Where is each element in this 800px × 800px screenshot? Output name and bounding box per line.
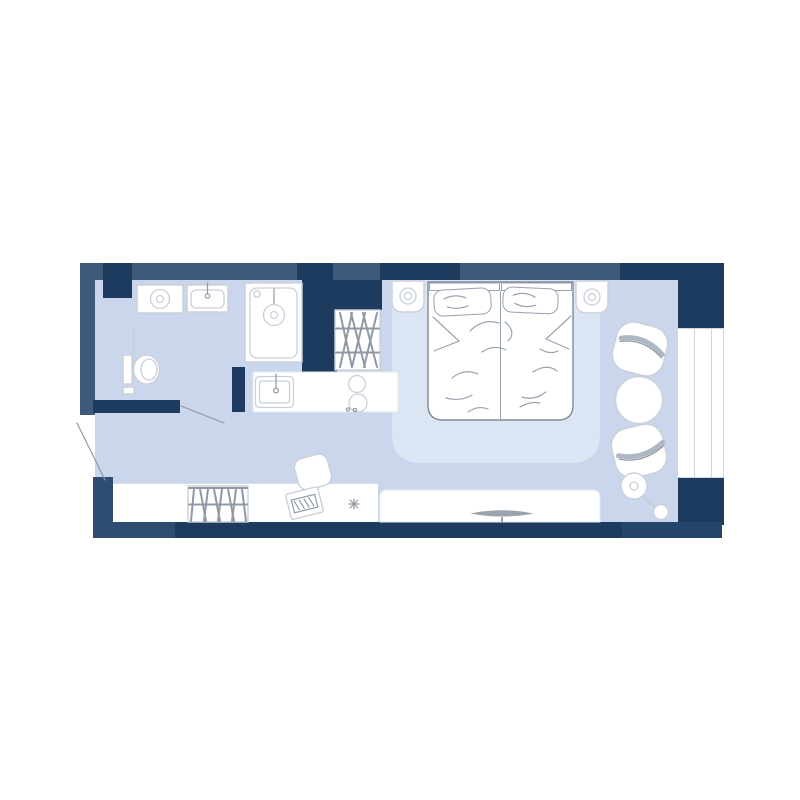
- nightstand-left: [392, 281, 424, 312]
- closet-wall-top: [302, 280, 382, 310]
- bottom-wall-main: [175, 522, 622, 538]
- bottom-wall-left: [93, 522, 175, 538]
- window-glass: [678, 328, 724, 478]
- left-lower-wall: [93, 477, 113, 525]
- floor-plan-svg: [0, 0, 800, 800]
- shower: [245, 283, 302, 362]
- top-wall-right: [460, 263, 620, 280]
- window-right: [678, 328, 724, 478]
- hanging-wardrobe: [335, 310, 380, 370]
- pillow-left: [433, 288, 491, 317]
- asterisk-marker-icon: [349, 499, 359, 509]
- kitchen-wall-stub: [232, 367, 245, 412]
- toilet-pipe-box: [123, 387, 134, 394]
- corner-block-bottom-right: [678, 478, 724, 525]
- nightstand-right: [576, 281, 608, 313]
- wall-column-top-left: [103, 263, 132, 298]
- bathroom-door-wall: [93, 400, 180, 413]
- closet-wardrobe: [188, 486, 248, 522]
- top-wall-dark-seg-2: [380, 263, 460, 280]
- left-wall: [80, 263, 95, 415]
- apartment-floor-plan: [0, 0, 800, 800]
- corner-block-top-right: [678, 263, 724, 328]
- top-wall-dark-seg-1: [297, 263, 333, 280]
- bottom-wall-right: [622, 522, 722, 538]
- floor-lamp-shade-icon: [621, 473, 647, 499]
- floor-lamp-base: [654, 505, 669, 520]
- round-table: [616, 377, 663, 424]
- pillow-right: [502, 287, 558, 314]
- closet-wall-side: [302, 310, 337, 373]
- bathroom-sink: [187, 283, 228, 312]
- tv-stand: [380, 490, 600, 522]
- toilet-tank: [123, 355, 132, 384]
- washing-machine: [137, 285, 183, 313]
- top-wall-mid: [333, 263, 380, 280]
- double-bed: [428, 282, 573, 420]
